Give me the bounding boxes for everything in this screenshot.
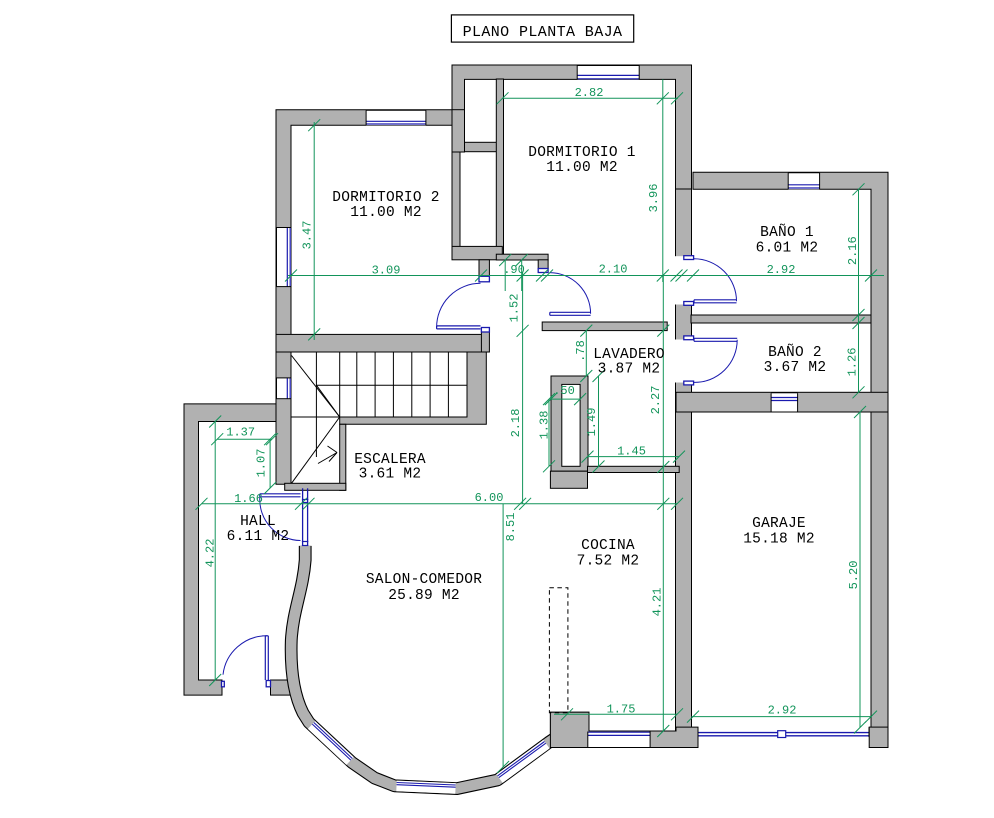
svg-text:1.66: 1.66 [234, 492, 263, 506]
svg-text:3.61 M2: 3.61 M2 [359, 467, 422, 483]
svg-text:4.22: 4.22 [203, 539, 217, 568]
svg-text:6.01 M2: 6.01 M2 [756, 241, 819, 257]
svg-text:SALON-COMEDOR: SALON-COMEDOR [366, 572, 482, 588]
svg-text:8.51: 8.51 [504, 513, 518, 542]
svg-text:DORMITORIO 2: DORMITORIO 2 [332, 190, 439, 206]
svg-text:1.45: 1.45 [617, 444, 646, 458]
svg-text:6.11 M2: 6.11 M2 [227, 529, 290, 545]
svg-text:1.26: 1.26 [846, 348, 860, 377]
svg-text:25.89 M2: 25.89 M2 [388, 588, 460, 604]
svg-text:HALL: HALL [240, 514, 276, 530]
svg-text:15.18 M2: 15.18 M2 [743, 532, 815, 548]
svg-text:2.92: 2.92 [768, 704, 797, 718]
svg-text:2.92: 2.92 [767, 263, 796, 277]
svg-text:2.27: 2.27 [649, 386, 663, 415]
svg-text:.50: .50 [553, 384, 575, 398]
svg-text:GARAJE: GARAJE [752, 516, 806, 532]
svg-text:1.75: 1.75 [607, 703, 636, 717]
svg-text:DORMITORIO 1: DORMITORIO 1 [528, 145, 635, 161]
svg-text:.78: .78 [574, 340, 588, 362]
svg-text:3.87 M2: 3.87 M2 [598, 362, 661, 378]
svg-text:11.00 M2: 11.00 M2 [350, 205, 422, 221]
svg-text:2.16: 2.16 [846, 236, 860, 265]
svg-text:2.10: 2.10 [599, 263, 628, 277]
svg-text:COCINA: COCINA [581, 538, 635, 554]
svg-text:4.21: 4.21 [650, 588, 664, 617]
svg-text:2.82: 2.82 [575, 86, 604, 100]
svg-text:1.49: 1.49 [585, 408, 599, 437]
svg-text:1.38: 1.38 [538, 411, 552, 440]
svg-text:PLANO PLANTA BAJA: PLANO PLANTA BAJA [463, 24, 623, 41]
svg-text:7.52 M2: 7.52 M2 [577, 554, 640, 570]
svg-text:3.96: 3.96 [647, 184, 661, 213]
svg-text:1.37: 1.37 [226, 425, 255, 439]
svg-text:BAÑO 2: BAÑO 2 [768, 344, 822, 361]
svg-text:3.67 M2: 3.67 M2 [764, 360, 827, 376]
svg-text:3.09: 3.09 [372, 264, 401, 278]
svg-text:.90: .90 [503, 263, 525, 277]
svg-text:2.18: 2.18 [509, 409, 523, 438]
svg-text:1.07: 1.07 [255, 449, 269, 478]
svg-text:1.52: 1.52 [508, 294, 522, 323]
svg-text:3.47: 3.47 [301, 221, 315, 250]
svg-text:6.00: 6.00 [475, 491, 504, 505]
svg-text:11.00 M2: 11.00 M2 [546, 160, 618, 176]
svg-text:BAÑO 1: BAÑO 1 [760, 224, 814, 241]
svg-text:5.20: 5.20 [847, 561, 861, 590]
